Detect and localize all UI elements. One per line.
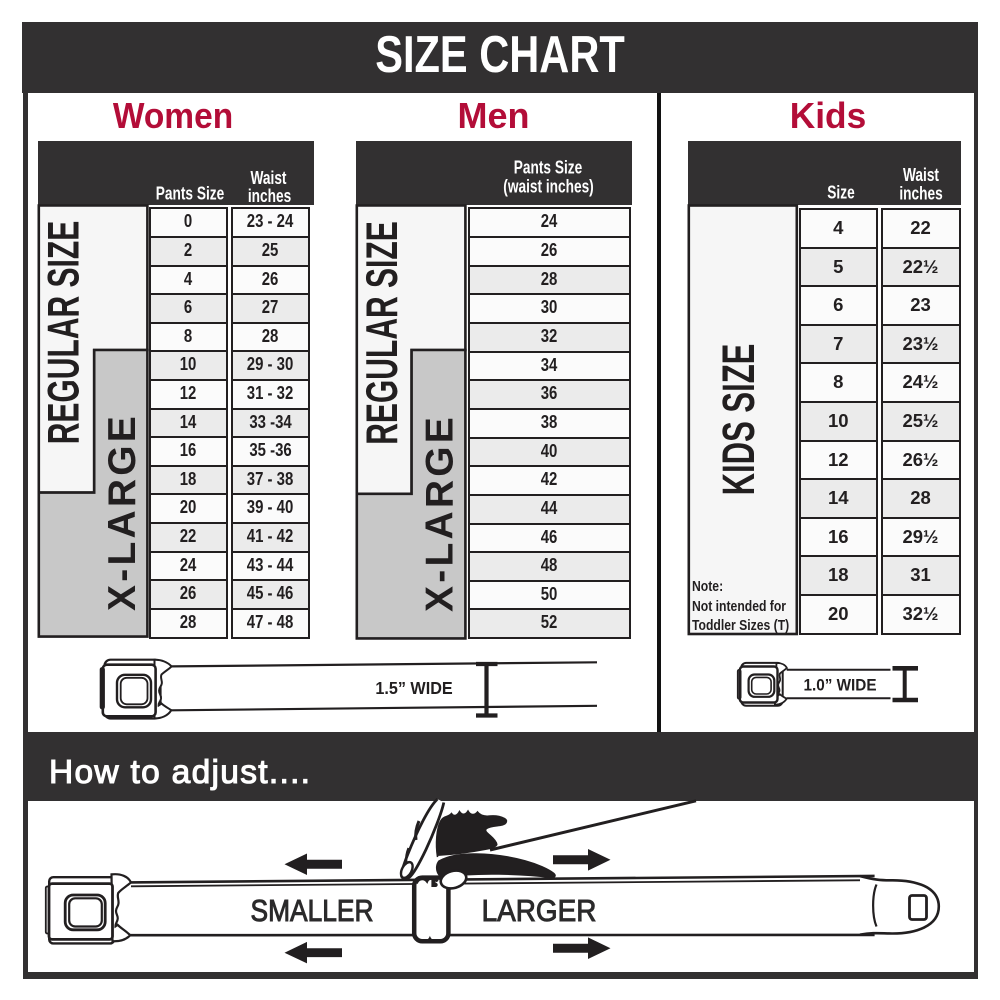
svg-text:LARGER: LARGER	[482, 894, 597, 929]
svg-text:SMALLER: SMALLER	[251, 894, 374, 928]
